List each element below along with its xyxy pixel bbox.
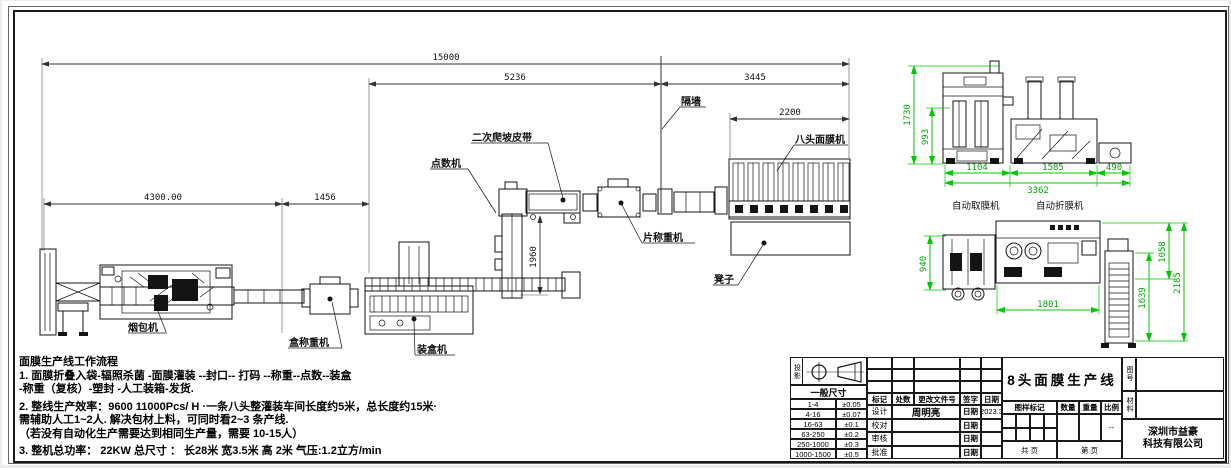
infeed-unit [715, 187, 727, 214]
sig-date-label: 日期 [960, 419, 981, 433]
tol-range: 1000-1500 [790, 449, 836, 459]
material-label: 材料 [1122, 391, 1136, 419]
cad-screenshot: 15000 5236 3445 2200 4300.00 1456 1960 [0, 0, 1231, 468]
notes-line: 2. 整线生产效率：9600 11000Pcs/ H ·一条八头整灌装车间长度约… [19, 401, 659, 415]
rev-date-header: 日期 [981, 393, 1002, 405]
dim-5236: 5236 [504, 73, 526, 83]
box-weigher-machine [302, 277, 358, 314]
tol-value: ±0.07 [836, 409, 867, 419]
drawing-sheet: 15000 5236 3445 2200 4300.00 1456 1960 [2, 1, 1229, 465]
dim-2200: 2200 [779, 108, 801, 118]
main-line-view: 15000 5236 3445 2200 4300.00 1456 1960 [40, 53, 850, 356]
pack-machine [100, 265, 234, 319]
rev-count-header: 处数 [892, 393, 914, 405]
tol-value: ±0.3 [836, 439, 867, 449]
stamp-qty-header: 数量 [1057, 401, 1079, 414]
cartoner-machine [365, 242, 473, 334]
sig-name [892, 419, 960, 433]
tol-range: 4-16 [790, 409, 836, 419]
sig-date-label: 日期 [960, 446, 981, 460]
ddim-2185: 2185 [1173, 272, 1183, 294]
tol-value: ±0.1 [836, 419, 867, 429]
label-stool: 凳子 [713, 273, 734, 286]
stamp-qty-value [1057, 414, 1079, 441]
label-box-weigher: 盒称重机 [288, 336, 329, 349]
stamp-weight-header: 重量 [1079, 401, 1101, 414]
rev-doc-header: 更改文件号 [914, 393, 960, 405]
title-block: 投影 一般尺寸 1-4 ±0.05 4-16 ±0.07 16-63 ±0.1 … [790, 357, 1224, 459]
sig-date [981, 446, 1002, 460]
output-belt [365, 278, 565, 291]
label-pack-machine: 烟包机 [128, 321, 158, 334]
tolerance-header: 一般尺寸 [790, 385, 867, 399]
notes-line: （若没有自动化生产需要达到相同生产量，需要 10-15人） [19, 428, 659, 442]
dim-1960: 1960 [529, 246, 539, 268]
sig-date-label: 日期 [960, 405, 981, 419]
connector [643, 194, 656, 211]
plan-left-unit [943, 235, 995, 300]
sig-date [981, 432, 1002, 446]
tol-range: 250-1000 [790, 439, 836, 449]
climbing-belt [526, 191, 580, 223]
dim-3445: 3445 [744, 73, 766, 83]
dim-4300: 4300.00 [144, 193, 182, 203]
projection-label: 投影 [791, 358, 803, 385]
machine-left-plate [40, 249, 56, 335]
plan-main-unit [996, 221, 1100, 283]
rev-mark-header: 标记 [867, 393, 892, 405]
tol-range: 63-250 [790, 429, 836, 439]
label-mask-machine: 八头面膜机 [794, 133, 845, 146]
wall-pass-belt [674, 192, 714, 212]
piece-weigher-machine [598, 179, 640, 217]
drawing-no-label: 图号 [1122, 357, 1136, 391]
notes-title: 面膜生产线工作流程 [19, 356, 659, 370]
notes-line: 需辅助人工1~2人. 解决包材上料，可同时看2~3 条产线. [19, 414, 659, 428]
ddim-1801: 1801 [1037, 300, 1059, 310]
stool-area [731, 222, 850, 255]
ddim-490: 490 [1106, 163, 1122, 173]
tol-value: ±0.2 [836, 429, 867, 439]
notes-line: 3. 整机总功率： 22KW 总尺寸 ： 长28米 宽3.5米 高 2米 气压:… [19, 445, 659, 459]
ddim-1058: 1058 [1158, 241, 1168, 263]
sheet-number: 第 页 [1057, 441, 1122, 459]
sig-name [892, 446, 960, 460]
dim-1456: 1456 [314, 193, 336, 203]
projection-cell: 投影 [790, 357, 867, 385]
sig-role: 设计 [867, 405, 892, 419]
label-climb-belt: 二次爬坡皮带 [472, 131, 532, 144]
sig-date [981, 419, 1002, 433]
ddim-940: 940 [919, 256, 929, 272]
stamp-scale-value: -- [1101, 414, 1122, 441]
company-line1: 深圳市益豪 [1148, 427, 1198, 439]
sig-name [892, 432, 960, 446]
tol-value: ±0.05 [836, 399, 867, 409]
sheet-total: 共 页 [1002, 441, 1057, 459]
label-cartoner: 装盒机 [416, 343, 447, 356]
ddim-1639: 1639 [1138, 287, 1148, 309]
detail-view-top: 1730 993 1104 1585 490 3362 自动取膜机 自动折膜机 [903, 61, 1131, 212]
drawing-title: 8头面膜生产线 [1002, 357, 1122, 401]
ddim-1104: 1104 [966, 163, 988, 173]
rev-sign-header: 签字 [960, 393, 981, 405]
label-piece-weigher: 片称重机 [643, 231, 683, 244]
detail-view-bottom: 940 1801 1058 1639 2185 [919, 221, 1188, 348]
notes-line: -称重（复核）-塑封 -人工装箱-发货. [19, 383, 659, 397]
company-line2: 科技有限公司 [1143, 439, 1203, 451]
label-wall: 隔墙 [681, 95, 701, 108]
sig-date: 2023.3 [981, 405, 1002, 419]
sig-date-label: 日期 [960, 432, 981, 446]
company-name: 深圳市益豪 科技有限公司 [1122, 419, 1224, 459]
ddim-993: 993 [921, 129, 931, 145]
transfer-arm [1003, 97, 1013, 105]
ddim-3362: 3362 [1027, 186, 1049, 196]
sig-role: 校对 [867, 419, 892, 433]
sig-role: 批准 [867, 446, 892, 460]
stamp-mark-header: 图样标记 [1002, 401, 1057, 414]
dim-15000: 15000 [432, 53, 459, 63]
label-film-taking: 自动取膜机 [952, 200, 1000, 212]
stool-leader-dot [762, 241, 767, 246]
notes-line: 1. 面膜折叠入袋-辐照杀菌 -面膜灌装 --封口-- 打码 --称重--点数-… [19, 370, 659, 384]
projection-symbol-icon [804, 358, 866, 385]
film-taking-machine [943, 61, 1003, 164]
connector [583, 194, 597, 211]
mask-machine [729, 159, 850, 219]
sig-role: 审核 [867, 432, 892, 446]
process-notes: 面膜生产线工作流程 1. 面膜折叠入袋-辐照杀菌 -面膜灌装 --封口-- 打码… [19, 356, 659, 459]
plan-outfeed-conveyor [1101, 239, 1136, 348]
sig-name: 周明亮 [892, 405, 960, 419]
belt-to-weigher [234, 290, 304, 303]
drawing-no-value [1136, 357, 1224, 391]
material-value [1136, 391, 1224, 419]
outfeed-unit [1099, 143, 1131, 163]
tol-value: ±0.5 [836, 449, 867, 459]
tol-range: 16-63 [790, 419, 836, 429]
stamp-scale-header: 比例 [1101, 401, 1122, 414]
stamp-weight-value [1079, 414, 1101, 441]
label-counter: 点数机 [431, 157, 461, 170]
tol-range: 1-4 [790, 399, 836, 409]
transfer-unit [658, 189, 672, 214]
label-film-folding: 自动折膜机 [1036, 200, 1084, 212]
ddim-1585: 1585 [1042, 163, 1064, 173]
ddim-1730: 1730 [903, 104, 913, 126]
film-folding-machine [1011, 77, 1097, 164]
